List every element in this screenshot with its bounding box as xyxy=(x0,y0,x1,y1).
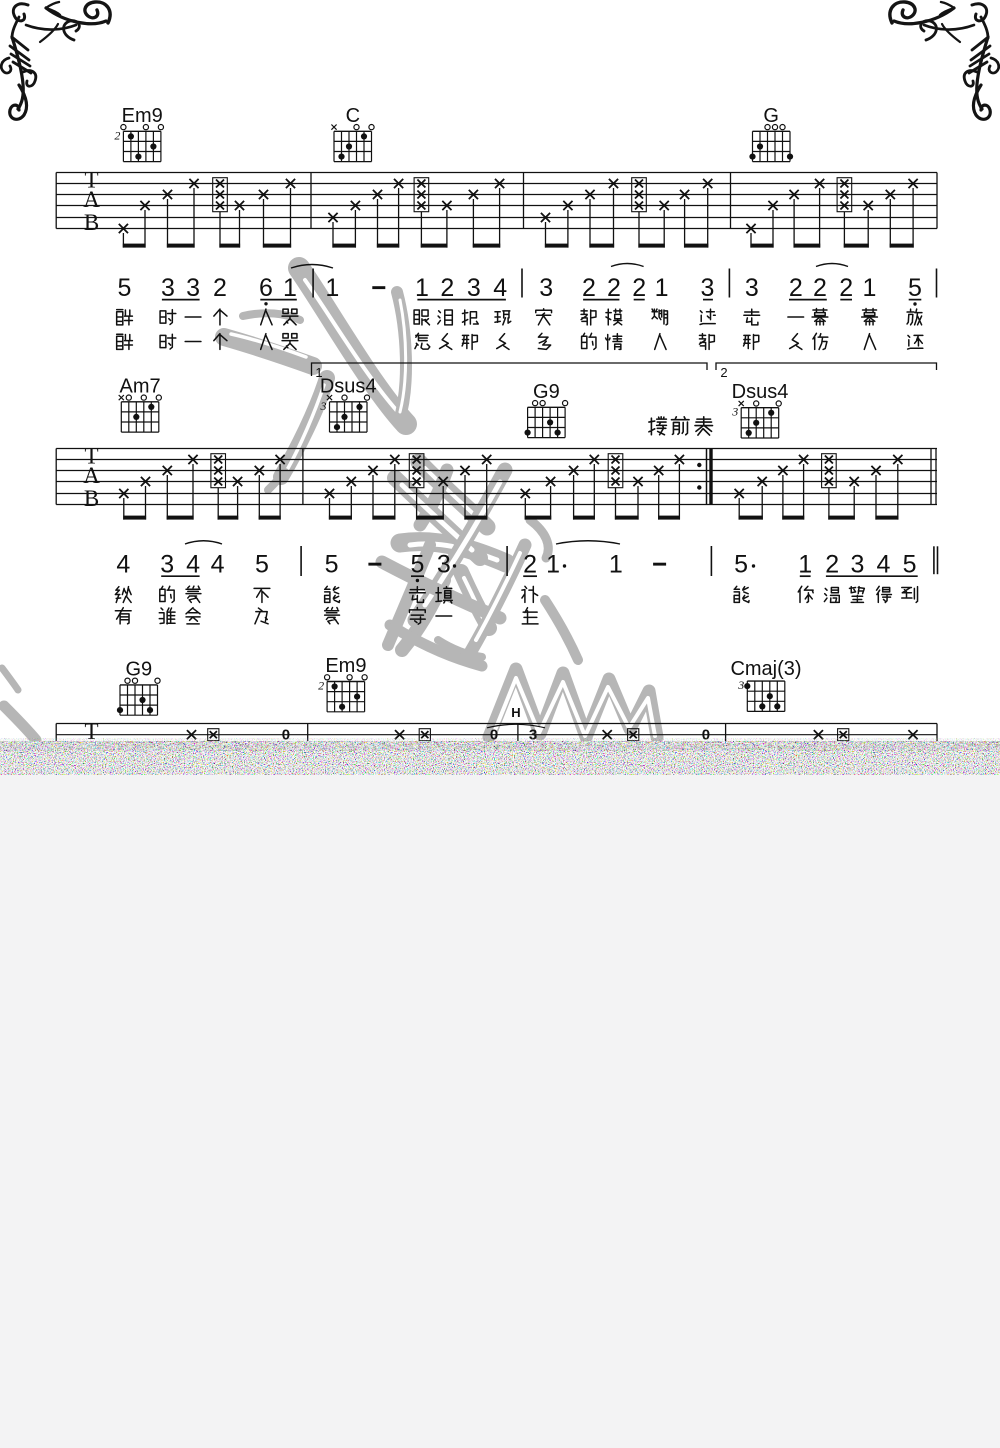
svg-text:2: 2 xyxy=(523,551,537,579)
svg-text:3: 3 xyxy=(745,274,759,302)
svg-text:4: 4 xyxy=(493,274,507,302)
svg-text:1: 1 xyxy=(863,274,877,302)
svg-text:2: 2 xyxy=(813,274,827,302)
svg-text:5: 5 xyxy=(325,551,339,579)
svg-text:A: A xyxy=(83,463,100,488)
svg-text:2: 2 xyxy=(440,274,454,302)
svg-text:Am7: Am7 xyxy=(120,375,161,397)
svg-text:5: 5 xyxy=(255,551,269,579)
svg-text:2: 2 xyxy=(213,274,227,302)
svg-text:5: 5 xyxy=(734,551,748,579)
svg-text:1: 1 xyxy=(655,274,669,302)
svg-text:5: 5 xyxy=(118,274,132,302)
svg-text:3: 3 xyxy=(160,551,174,579)
svg-text:4: 4 xyxy=(211,551,225,579)
svg-text:3: 3 xyxy=(467,274,481,302)
svg-text:3: 3 xyxy=(737,678,744,692)
svg-text:2: 2 xyxy=(318,679,324,693)
svg-text:3: 3 xyxy=(539,274,553,302)
svg-text:G9: G9 xyxy=(533,381,560,403)
svg-text:4: 4 xyxy=(186,551,200,579)
svg-text:3: 3 xyxy=(850,551,864,579)
svg-text:2: 2 xyxy=(839,274,853,302)
svg-text:5: 5 xyxy=(908,274,922,302)
svg-text:3: 3 xyxy=(320,399,327,413)
svg-text:5: 5 xyxy=(410,551,424,579)
svg-text:C: C xyxy=(346,105,360,127)
svg-text:Dsus4: Dsus4 xyxy=(320,375,377,397)
svg-text:6: 6 xyxy=(259,274,273,302)
svg-text:Em9: Em9 xyxy=(122,105,163,127)
svg-text:3: 3 xyxy=(186,274,200,302)
svg-text:1: 1 xyxy=(325,274,339,302)
svg-text:2: 2 xyxy=(632,274,646,302)
svg-text:B: B xyxy=(84,210,99,235)
svg-text:2: 2 xyxy=(607,274,621,302)
svg-text:1: 1 xyxy=(283,274,297,302)
svg-text:4: 4 xyxy=(116,551,130,579)
svg-text:G: G xyxy=(763,105,779,127)
svg-text:3: 3 xyxy=(700,274,714,302)
svg-text:3: 3 xyxy=(437,551,451,579)
svg-text:A: A xyxy=(83,187,100,212)
svg-text:1: 1 xyxy=(546,551,560,579)
svg-text:Em9: Em9 xyxy=(325,655,366,677)
svg-text:4: 4 xyxy=(877,551,891,579)
svg-text:1: 1 xyxy=(415,274,429,302)
svg-text:5: 5 xyxy=(903,551,917,579)
svg-text:B: B xyxy=(84,486,99,511)
svg-text:Dsus4: Dsus4 xyxy=(732,381,789,403)
svg-text:H: H xyxy=(511,705,520,720)
svg-text:2: 2 xyxy=(720,365,727,380)
svg-text:2: 2 xyxy=(789,274,803,302)
svg-text:1: 1 xyxy=(798,551,812,579)
svg-text:3: 3 xyxy=(161,274,175,302)
svg-text:3: 3 xyxy=(731,405,738,419)
svg-text:2: 2 xyxy=(114,128,120,142)
svg-text:Cmaj(3): Cmaj(3) xyxy=(730,658,801,680)
svg-text:2: 2 xyxy=(825,551,839,579)
svg-text:1: 1 xyxy=(609,551,623,579)
svg-text:G9: G9 xyxy=(125,658,152,680)
svg-text:2: 2 xyxy=(582,274,596,302)
